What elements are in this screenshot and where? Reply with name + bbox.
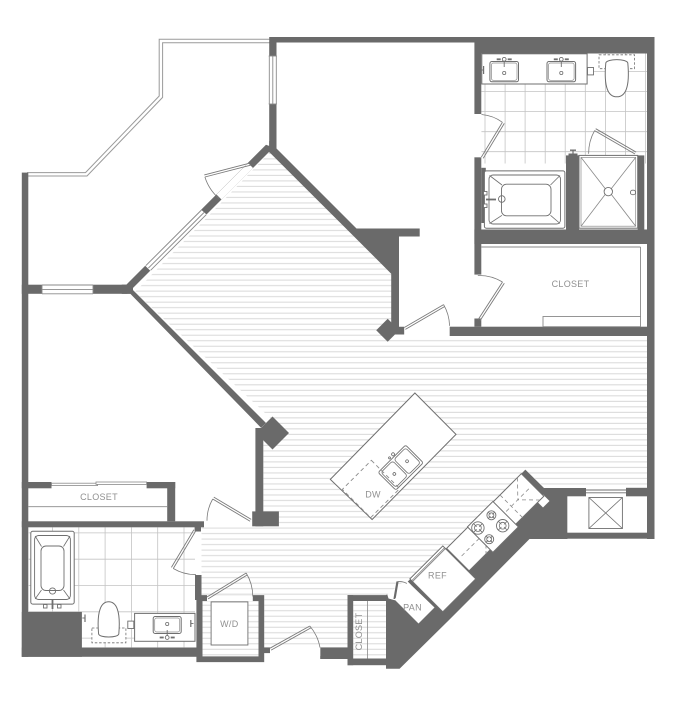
svg-text:W/D: W/D <box>220 619 239 629</box>
svg-text:CLOSET: CLOSET <box>354 612 364 650</box>
svg-text:DW: DW <box>365 490 381 500</box>
svg-text:CLOSET: CLOSET <box>552 279 590 289</box>
svg-text:PAN: PAN <box>403 603 422 613</box>
svg-text:CLOSET: CLOSET <box>80 492 118 502</box>
svg-text:REF: REF <box>428 571 447 581</box>
